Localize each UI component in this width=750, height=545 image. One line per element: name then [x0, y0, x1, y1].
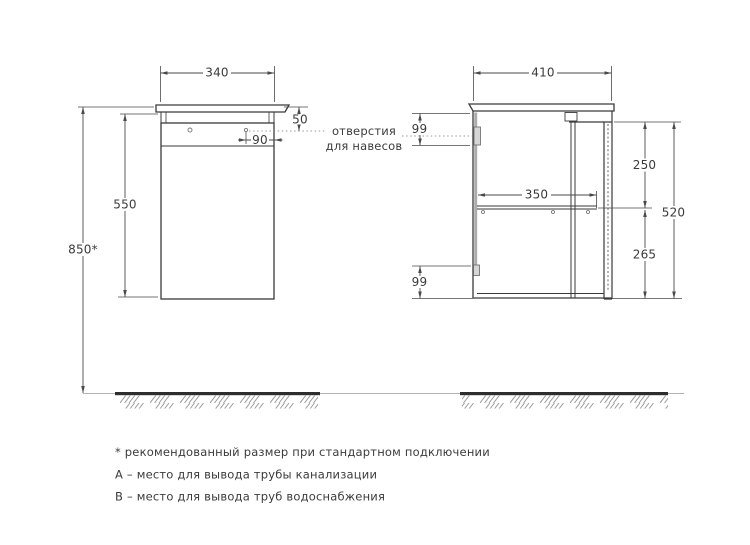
dim-label-550: 550 — [113, 198, 137, 212]
footnote-water-supply-outlet: В – место для вывода труб водоснабжения — [115, 490, 385, 504]
dim-label-50: 50 — [292, 113, 308, 127]
hanger-bracket-bottom — [474, 265, 480, 276]
dim-label-340: 340 — [205, 66, 229, 80]
shelf-side — [477, 206, 597, 209]
dim-label-99-bottom: 99 — [412, 275, 428, 289]
cabinet-body-front — [161, 123, 274, 299]
dim-label-90: 90 — [252, 133, 268, 147]
hanger-hole-left — [188, 128, 192, 132]
floor-line-left — [115, 392, 320, 395]
dim-label-350: 350 — [525, 188, 549, 202]
apron-inner-edges — [166, 112, 269, 123]
dim-label-520: 520 — [662, 206, 686, 220]
front-view — [156, 105, 289, 299]
dim-label-850: 850* — [68, 243, 98, 257]
footnotes: * рекомендованный размер при стандартном… — [115, 445, 490, 504]
hanger-holes-label-line2: для навесов — [326, 139, 403, 153]
dim-label-265: 265 — [633, 248, 657, 262]
countertop-side — [469, 104, 614, 111]
floor — [83, 392, 684, 409]
dim-label-99-top: 99 — [412, 122, 428, 136]
dim-label-410: 410 — [531, 66, 555, 80]
extension-lines-side — [412, 66, 682, 299]
front-view-dimensions: 340 550 850* 50 90 — [68, 66, 326, 394]
hanger-holes-label-line1: отверстия — [332, 124, 396, 138]
shelf-pin-2 — [552, 211, 555, 214]
hanger-holes-annotation: отверстия для навесов — [326, 124, 472, 153]
hanger-bracket-top — [474, 127, 481, 145]
cabinet-dimension-drawing: 340 550 850* 50 90 отверстия для навесов — [0, 0, 750, 545]
footnote-sewage-outlet: А – место для вывода трубы канализации — [115, 468, 377, 482]
shelf-pin-3 — [587, 211, 590, 214]
shelf-pin-1 — [482, 211, 485, 214]
footnote-recommended-size: * рекомендованный размер при стандартном… — [115, 445, 490, 459]
side-view-dimensions: 410 99 99 350 250 265 520 — [411, 66, 688, 299]
apron-front — [161, 112, 274, 123]
floor-hatching-right — [462, 396, 668, 409]
floor-hatching-left — [117, 396, 318, 409]
dim-label-250: 250 — [633, 158, 657, 172]
countertop-front — [156, 105, 289, 112]
floor-line-right — [460, 392, 668, 395]
technical-drawing-page: 340 550 850* 50 90 отверстия для навесов — [0, 0, 750, 545]
hanger-hole-right — [244, 128, 247, 131]
front-bracket — [565, 113, 577, 122]
